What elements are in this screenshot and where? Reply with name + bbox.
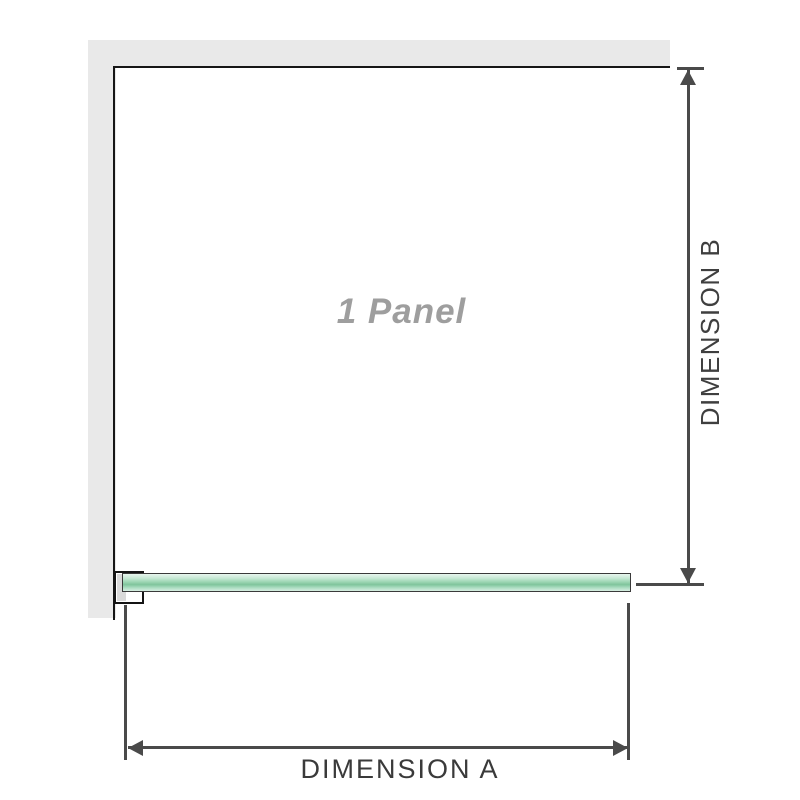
dimension-a-extension-left: [124, 605, 127, 760]
dimension-b-line: [687, 70, 690, 583]
glass-panel-bar: [122, 573, 631, 592]
dimension-a-line: [128, 746, 628, 749]
dimension-b-cap-bottom: [636, 583, 704, 586]
wall-top-strip: [88, 40, 670, 68]
shower-panel-dimension-diagram: 1 Panel DIMENSION B DIMENSION A: [0, 0, 800, 800]
dimension-a-extension-right: [627, 603, 630, 760]
wall-left-strip: [88, 40, 116, 618]
panel-top-edge: [113, 66, 670, 68]
arrow-down-icon: [680, 568, 696, 583]
dimension-a-label: DIMENSION A: [130, 754, 670, 785]
dimension-b-label: DIMENSION B: [696, 200, 724, 464]
arrow-up-icon: [680, 70, 696, 85]
panel-count-label: 1 Panel: [113, 292, 690, 332]
panel-left-edge: [113, 66, 115, 620]
